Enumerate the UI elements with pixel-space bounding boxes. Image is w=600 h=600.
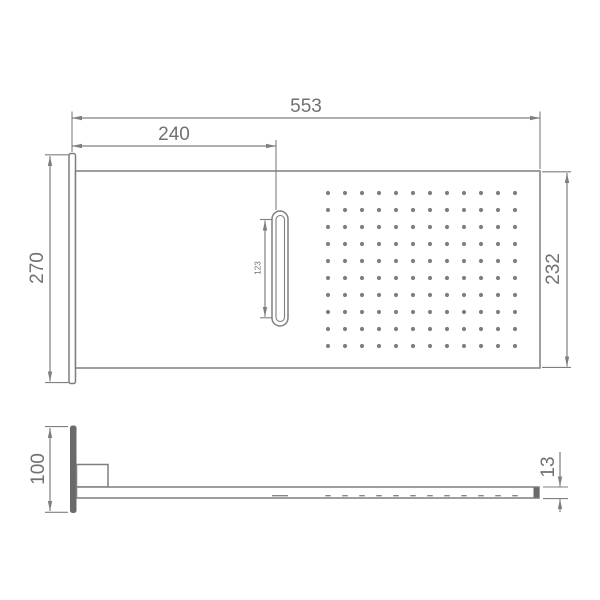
spray-hole	[428, 242, 432, 246]
plate-end-cap	[534, 488, 540, 498]
spray-hole	[445, 242, 449, 246]
spray-hole	[513, 259, 517, 263]
spray-hole	[343, 259, 347, 263]
dim-100-label: 100	[28, 453, 49, 485]
spray-hole	[394, 259, 398, 263]
spray-hole	[428, 259, 432, 263]
spray-hole	[360, 276, 364, 280]
spray-hole	[462, 293, 466, 297]
spray-hole	[513, 344, 517, 348]
wall-flange-profile	[69, 154, 76, 384]
spray-hole	[496, 310, 500, 314]
dim-270-label: 270	[27, 252, 48, 284]
spray-hole	[343, 242, 347, 246]
spray-hole	[411, 259, 415, 263]
spray-hole	[496, 191, 500, 195]
spray-hole	[377, 259, 381, 263]
spray-hole	[360, 259, 364, 263]
spray-hole	[479, 293, 483, 297]
spray-hole	[462, 242, 466, 246]
spray-hole	[411, 208, 415, 212]
spray-hole	[445, 225, 449, 229]
spray-hole	[326, 310, 330, 314]
spray-hole	[496, 327, 500, 331]
spray-hole	[343, 191, 347, 195]
spray-hole	[394, 191, 398, 195]
spray-hole	[377, 327, 381, 331]
spray-hole	[462, 191, 466, 195]
spray-hole	[479, 242, 483, 246]
spray-hole	[496, 242, 500, 246]
spray-hole	[428, 293, 432, 297]
spray-hole	[479, 276, 483, 280]
spray-hole	[360, 327, 364, 331]
spray-hole	[496, 225, 500, 229]
spray-hole	[445, 327, 449, 331]
spray-hole	[326, 242, 330, 246]
spray-hole	[343, 310, 347, 314]
spray-plate-profile	[77, 487, 540, 498]
spray-hole	[343, 208, 347, 212]
spray-hole	[377, 293, 381, 297]
spray-hole	[360, 242, 364, 246]
spray-hole	[445, 276, 449, 280]
spray-hole	[462, 208, 466, 212]
spray-hole	[411, 327, 415, 331]
spray-hole	[411, 225, 415, 229]
spray-hole	[513, 191, 517, 195]
spray-hole	[462, 259, 466, 263]
spray-hole	[496, 293, 500, 297]
spray-hole	[394, 293, 398, 297]
dim-553-label: 553	[290, 96, 322, 117]
spray-hole	[326, 225, 330, 229]
spray-hole	[343, 344, 347, 348]
spray-hole	[479, 225, 483, 229]
dim-flange-height: 270	[27, 155, 69, 383]
spray-hole	[445, 293, 449, 297]
spray-hole	[428, 344, 432, 348]
spray-hole	[513, 276, 517, 280]
spray-hole	[462, 327, 466, 331]
dim-plate-thickness: 13	[538, 452, 568, 512]
dim-faceplate-height: 232	[542, 172, 571, 368]
spray-hole	[428, 327, 432, 331]
shower-faceplate	[76, 171, 541, 368]
spray-hole	[411, 191, 415, 195]
spray-hole	[411, 276, 415, 280]
spray-hole	[445, 191, 449, 195]
wall-plate-profile	[70, 426, 77, 514]
spray-hole	[377, 208, 381, 212]
spray-hole	[411, 242, 415, 246]
spray-hole	[377, 276, 381, 280]
spray-hole	[326, 259, 330, 263]
spray-hole	[479, 327, 483, 331]
spray-hole	[428, 191, 432, 195]
spray-hole	[360, 344, 364, 348]
spray-hole	[513, 327, 517, 331]
spray-hole	[479, 259, 483, 263]
spray-hole	[479, 310, 483, 314]
spray-hole	[513, 225, 517, 229]
spray-hole	[360, 191, 364, 195]
spray-hole	[326, 191, 330, 195]
spray-hole	[411, 310, 415, 314]
spray-hole	[411, 293, 415, 297]
spray-hole	[394, 276, 398, 280]
spray-hole	[360, 225, 364, 229]
dim-overall-width: 553	[72, 96, 540, 169]
spray-hole	[394, 208, 398, 212]
spray-hole	[496, 208, 500, 212]
spray-hole	[394, 327, 398, 331]
spray-hole	[479, 344, 483, 348]
spray-hole	[479, 208, 483, 212]
spray-hole	[360, 208, 364, 212]
dim-13-label: 13	[538, 456, 559, 477]
spray-hole	[428, 225, 432, 229]
spray-hole	[496, 259, 500, 263]
spray-hole	[513, 208, 517, 212]
spray-hole	[343, 293, 347, 297]
spray-hole	[462, 344, 466, 348]
spray-hole	[479, 191, 483, 195]
spray-hole	[445, 344, 449, 348]
spray-hole	[411, 344, 415, 348]
spray-hole	[326, 344, 330, 348]
spray-hole	[377, 225, 381, 229]
dim-240-label: 240	[158, 124, 190, 145]
inlet-box	[77, 465, 109, 488]
spray-hole	[394, 225, 398, 229]
spray-hole	[462, 225, 466, 229]
dim-side-flange-height: 100	[28, 427, 68, 513]
spray-hole	[462, 276, 466, 280]
spray-hole	[326, 208, 330, 212]
spray-hole	[377, 344, 381, 348]
drawing-canvas: 553 240 270 232 123	[0, 0, 600, 600]
spray-hole	[445, 208, 449, 212]
dim-232-label: 232	[543, 253, 564, 285]
spray-hole	[377, 242, 381, 246]
spray-hole	[513, 293, 517, 297]
spray-hole	[326, 293, 330, 297]
spray-hole	[394, 242, 398, 246]
spray-hole	[496, 276, 500, 280]
spray-hole	[343, 276, 347, 280]
spray-hole	[343, 327, 347, 331]
spray-hole	[326, 327, 330, 331]
spray-hole	[513, 242, 517, 246]
spray-hole	[445, 259, 449, 263]
spray-hole	[428, 310, 432, 314]
spray-hole	[496, 344, 500, 348]
spray-hole	[360, 310, 364, 314]
technical-drawing: 553 240 270 232 123	[0, 0, 600, 600]
dim-123-label: 123	[254, 261, 263, 275]
spray-hole	[445, 310, 449, 314]
spray-hole	[360, 293, 364, 297]
spray-hole	[394, 310, 398, 314]
front-view: 553 240 270 232 123	[27, 96, 571, 384]
spray-hole	[343, 225, 347, 229]
spray-hole	[377, 191, 381, 195]
spray-hole	[394, 344, 398, 348]
spray-hole	[377, 310, 381, 314]
spray-hole	[513, 310, 517, 314]
spray-hole	[428, 208, 432, 212]
spray-hole	[428, 276, 432, 280]
spray-hole	[326, 276, 330, 280]
waterfall-slot-inner	[276, 216, 285, 322]
spray-hole	[462, 310, 466, 314]
side-view: 100 13	[28, 426, 568, 514]
